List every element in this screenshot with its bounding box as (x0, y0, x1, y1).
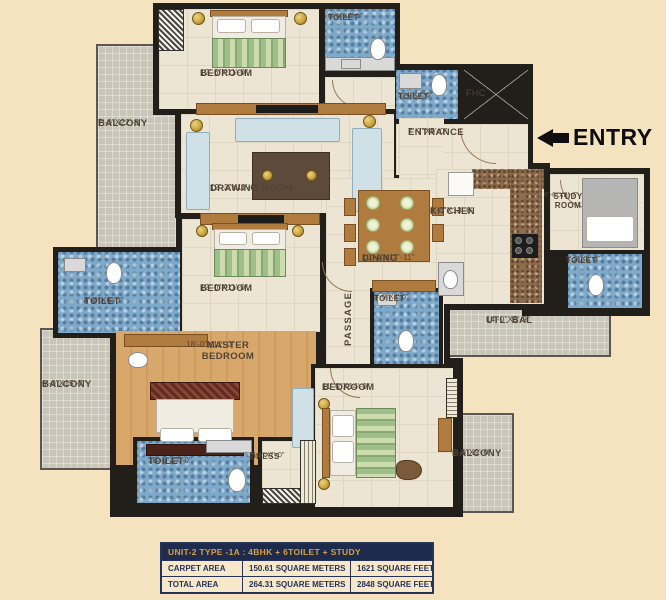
toilet-fixture (588, 274, 604, 296)
dining-chair (432, 224, 444, 242)
vanity (206, 440, 252, 453)
bed-blanket (356, 408, 396, 478)
sink (341, 59, 361, 69)
table-row: TOTAL AREA 264.31 SQUARE METERS 2848 SQU… (162, 576, 432, 592)
bed-canopy (150, 382, 240, 400)
side-table (292, 225, 304, 237)
bed-blanket (214, 249, 286, 277)
toilet-fixture (106, 262, 122, 284)
floor-plan: BEDROOM12'-6"X11'-0" TOILET6'-0"X7'-5" T… (0, 0, 666, 600)
pillow (251, 19, 280, 33)
decor-plate (262, 170, 273, 181)
pillow (586, 216, 634, 242)
area-meters: 150.61 SQUARE METERS (242, 561, 350, 576)
bed-blanket (212, 38, 286, 68)
plate (366, 240, 380, 254)
area-table-header: UNIT-2 TYPE -1A : 4BHK + 6TOILET + STUDY (162, 544, 432, 560)
entry-label: ENTRY (573, 124, 653, 151)
tv (238, 215, 284, 223)
side-table (192, 12, 205, 25)
side-table (363, 115, 376, 128)
plate (366, 196, 380, 210)
area-row-label: TOTAL AREA (162, 577, 242, 592)
sink (399, 73, 422, 89)
sideboard (372, 280, 436, 292)
area-feet: 1621 SQUARE FEET (350, 561, 432, 576)
fridge (448, 172, 474, 196)
basin (443, 270, 458, 289)
pillow (332, 441, 354, 463)
area-feet: 2848 SQUARE FEET (350, 577, 432, 592)
tv (256, 105, 318, 113)
desk (438, 418, 452, 452)
balcony-bottom-left-floor (40, 328, 116, 470)
sofa (292, 388, 314, 448)
chair (396, 460, 422, 480)
pillow (219, 232, 247, 245)
wardrobe (300, 440, 316, 504)
area-meters: 264.31 SQUARE METERS (242, 577, 350, 592)
side-table (196, 225, 208, 237)
bed-headboard (322, 408, 330, 478)
wash-basin (128, 352, 148, 368)
pillow (252, 232, 280, 245)
plate (366, 218, 380, 232)
toilet-fixture (228, 468, 246, 492)
area-row-label: CARPET AREA (162, 561, 242, 576)
area-table: UNIT-2 TYPE -1A : 4BHK + 6TOILET + STUDY… (160, 542, 434, 594)
pillow (160, 428, 194, 442)
side-table (294, 12, 307, 25)
stove (512, 234, 538, 258)
plate (400, 218, 414, 232)
toilet-fixture (398, 330, 414, 352)
toilet-fixture (370, 38, 386, 60)
side-table (318, 478, 330, 490)
decor-plate (306, 170, 317, 181)
window-hatch (446, 378, 458, 418)
toilet-fixture (431, 74, 447, 96)
dining-chair (344, 224, 356, 242)
sink (64, 258, 86, 272)
dining-chair (344, 198, 356, 216)
pillow (332, 415, 354, 437)
wardrobe-hatch (158, 9, 184, 51)
table-row: CARPET AREA 150.61 SQUARE METERS 1621 SQ… (162, 560, 432, 576)
entry-arrow-icon (551, 133, 569, 143)
sofa (235, 118, 340, 142)
plate (400, 196, 414, 210)
sofa (186, 132, 210, 210)
pillow (217, 19, 246, 33)
dining-chair (344, 248, 356, 266)
plate (400, 240, 414, 254)
side-table (190, 119, 203, 132)
